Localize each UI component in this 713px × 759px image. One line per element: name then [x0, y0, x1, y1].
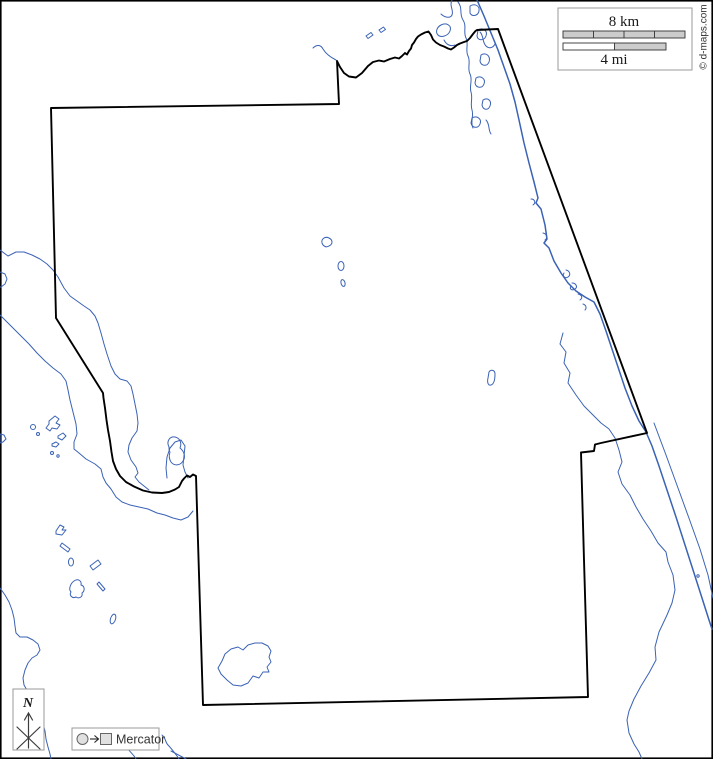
outline-map: 8 km 4 mi © d-maps.com N	[0, 0, 713, 759]
north-compass: N	[13, 689, 44, 750]
river-west-2	[0, 315, 193, 520]
county-boundary	[51, 29, 647, 705]
projection-square-icon	[101, 734, 112, 745]
ponds	[168, 237, 495, 465]
scale-mi-label: 4 mi	[600, 52, 627, 68]
island	[366, 33, 373, 39]
map-frame	[1, 1, 712, 758]
river-west-1	[0, 250, 149, 490]
shore-dot	[697, 575, 699, 577]
projection-label: Mercator	[116, 733, 165, 747]
creek-source	[313, 45, 336, 60]
islands-lower	[56, 525, 117, 625]
creek-east	[560, 333, 675, 759]
islands-upper	[0, 416, 66, 457]
county-map-svg: 8 km 4 mi © d-maps.com N	[0, 0, 713, 759]
island	[379, 27, 386, 33]
ocean-shoreline	[654, 423, 713, 598]
projection-legend: Mercator	[72, 728, 165, 750]
globe-circle-icon	[77, 734, 88, 745]
scale-km-label: 8 km	[609, 14, 640, 30]
map-credit: © d-maps.com	[699, 4, 710, 69]
water-features	[0, 0, 713, 759]
scale-bar: 8 km 4 mi	[558, 8, 692, 70]
north-label: N	[22, 696, 34, 711]
coastline-lagoon	[477, 0, 712, 629]
lake	[218, 643, 271, 686]
scale-bar-mi	[563, 43, 666, 50]
marsh-hooks	[531, 199, 586, 310]
scale-bar-km	[563, 31, 685, 38]
